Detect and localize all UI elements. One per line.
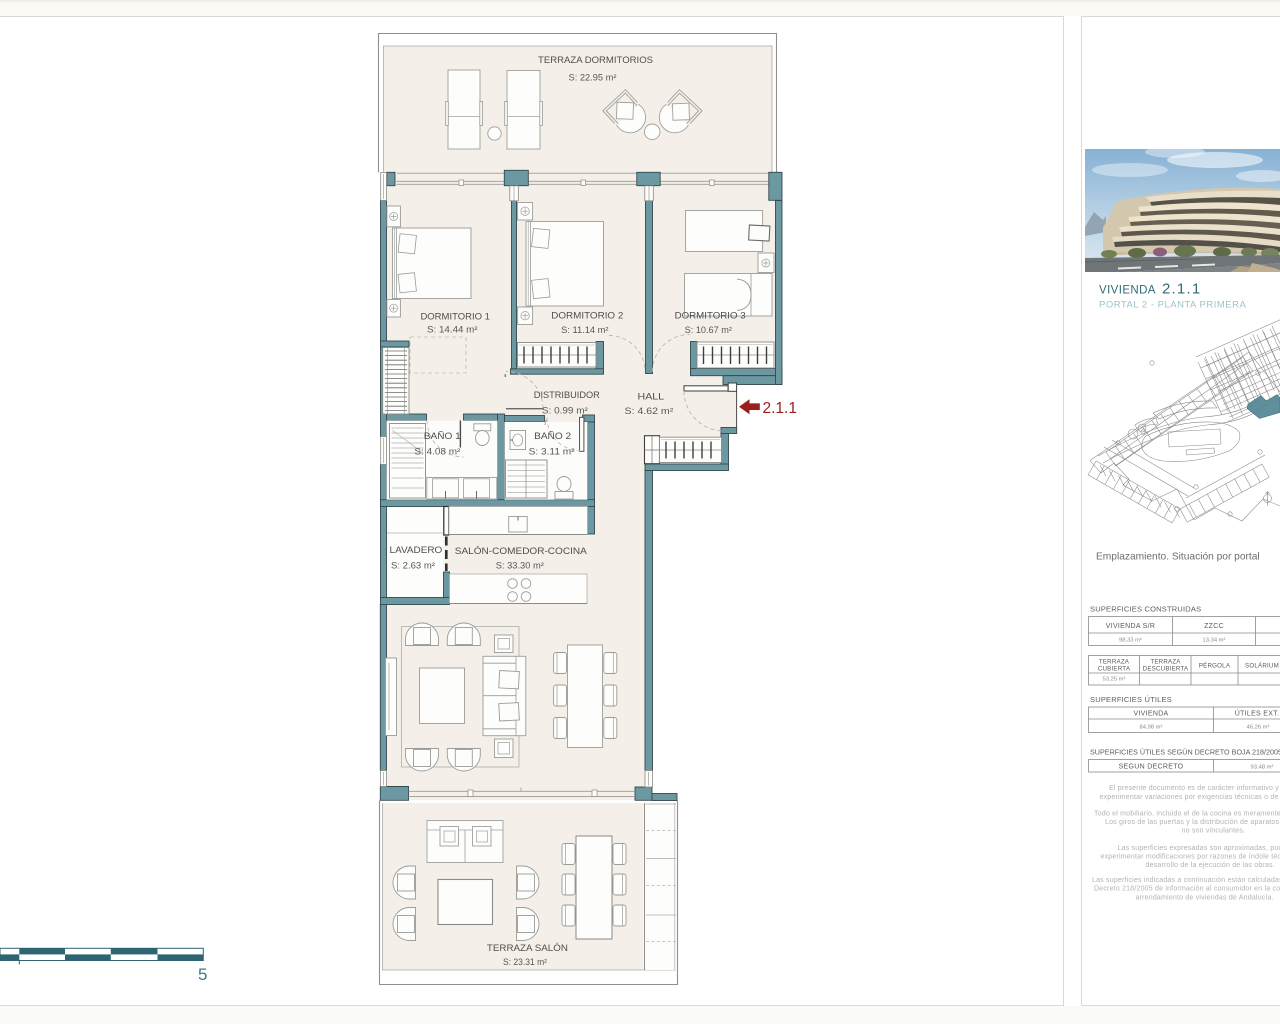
svg-text:S: 10.67 m²: S: 10.67 m²	[685, 325, 732, 335]
svg-text:Las superficies indicadas a co: Las superficies indicadas a continuación…	[1092, 877, 1280, 884]
svg-text:S: 0.99 m²: S: 0.99 m²	[542, 406, 588, 416]
svg-text:S: 3.11 m²: S: 3.11 m²	[529, 447, 575, 457]
svg-text:DORMITORIO 2: DORMITORIO 2	[551, 311, 623, 322]
svg-text:TERRAZA SALÓN: TERRAZA SALÓN	[487, 943, 568, 954]
svg-text:S: 14.44 m²: S: 14.44 m²	[427, 325, 478, 335]
svg-text:LAVADERO: LAVADERO	[390, 545, 443, 556]
svg-text:TERRAZA: TERRAZA	[1099, 659, 1130, 666]
svg-text:Los giros de las puertas y la: Los giros de las puertas y la distribuci…	[1105, 819, 1280, 826]
svg-text:S: 4.62 m²: S: 4.62 m²	[625, 406, 674, 416]
svg-text:arrendamiento de viviendas de: arrendamiento de viviendas de Andalucía.	[1136, 895, 1274, 902]
svg-text:S: 22.95 m²: S: 22.95 m²	[569, 73, 617, 83]
svg-text:Todo el mobiliario, incluido e: Todo el mobiliario, incluido el de la co…	[1094, 811, 1280, 818]
svg-text:El presente documento es de ca: El presente documento es de carácter inf…	[1109, 785, 1279, 792]
svg-text:SOLÁRIUM: SOLÁRIUM	[1245, 663, 1279, 670]
svg-text:VIVIENDA: VIVIENDA	[1099, 285, 1156, 297]
svg-text:13,34 m²: 13,34 m²	[1203, 638, 1226, 644]
svg-text:SALÓN-COMEDOR-COCINA: SALÓN-COMEDOR-COCINA	[455, 546, 588, 557]
svg-text:TERRAZA: TERRAZA	[1150, 659, 1181, 666]
svg-text:experimentar modificaciones po: experimentar modificaciones por razones …	[1101, 854, 1280, 861]
svg-text:53,25 m²: 53,25 m²	[1103, 677, 1126, 683]
svg-text:DORMITORIO 1: DORMITORIO 1	[420, 312, 490, 323]
svg-text:S: 33.30 m²: S: 33.30 m²	[496, 561, 544, 571]
svg-text:S: 23.31 m²: S: 23.31 m²	[503, 957, 547, 967]
svg-text:84,98 m²: 84,98 m²	[1140, 725, 1163, 731]
svg-text:SUPERFICIES CONSTRUIDAS: SUPERFICIES CONSTRUIDAS	[1090, 605, 1201, 614]
svg-text:5: 5	[198, 965, 207, 984]
svg-text:DORMITORIO 3: DORMITORIO 3	[675, 311, 746, 322]
svg-text:desarrollo de la ejecución de: desarrollo de la ejecución de las obras.	[1146, 862, 1275, 869]
svg-text:93,48 m²: 93,48 m²	[1251, 765, 1274, 771]
svg-text:BAÑO 2: BAÑO 2	[534, 431, 571, 442]
svg-text:DESCUBIERTA: DESCUBIERTA	[1143, 666, 1189, 673]
svg-text:HALL: HALL	[638, 392, 665, 403]
svg-text:98,33 m²: 98,33 m²	[1119, 638, 1142, 644]
svg-text:PÉRGOLA: PÉRGOLA	[1199, 663, 1231, 670]
svg-text:CUBIERTA: CUBIERTA	[1098, 666, 1131, 673]
svg-text:SUPERFICIES ÚTILES SEGÚN DECRE: SUPERFICIES ÚTILES SEGÚN DECRETO BOJA 21…	[1090, 748, 1280, 757]
svg-text:TERRAZA DORMITORIOS: TERRAZA DORMITORIOS	[538, 55, 653, 66]
svg-text:Las superficies expresadas son: Las superficies expresadas son aproximad…	[1118, 845, 1280, 852]
svg-text:46,26 m²: 46,26 m²	[1247, 725, 1270, 731]
svg-text:ZZCC: ZZCC	[1204, 623, 1224, 630]
svg-text:2.1.1: 2.1.1	[763, 400, 798, 417]
svg-text:ÚTILES EXT.: ÚTILES EXT.	[1235, 709, 1280, 718]
svg-text:experimentar variaciones por e: experimentar variaciones por exigencias …	[1100, 794, 1279, 801]
svg-text:Decreto 218/2005 de informació: Decreto 218/2005 de información al consu…	[1094, 886, 1280, 893]
svg-text:VIVIENDA: VIVIENDA	[1133, 711, 1168, 718]
svg-text:BAÑO 1: BAÑO 1	[424, 431, 461, 442]
svg-text:S: 11.14 m²: S: 11.14 m²	[561, 325, 608, 335]
svg-text:S: 2.63 m²: S: 2.63 m²	[391, 561, 435, 571]
svg-text:SEGUN DECRETO: SEGUN DECRETO	[1119, 764, 1184, 771]
svg-text:SUPERFICIES ÚTILES: SUPERFICIES ÚTILES	[1090, 695, 1172, 704]
svg-text:S: 4.08 m²: S: 4.08 m²	[414, 447, 460, 457]
svg-text:2.1.1: 2.1.1	[1162, 281, 1201, 298]
svg-text:PORTAL 2 - PLANTA PRIMERA: PORTAL 2 - PLANTA PRIMERA	[1099, 300, 1246, 311]
svg-text:no son vinculantes.: no son vinculantes.	[1182, 828, 1246, 835]
svg-text:DISTRIBUIDOR: DISTRIBUIDOR	[534, 390, 600, 401]
svg-text:Emplazamiento. Situación por p: Emplazamiento. Situación por portal	[1096, 552, 1260, 563]
svg-text:VIVIENDA S/R: VIVIENDA S/R	[1106, 623, 1156, 630]
